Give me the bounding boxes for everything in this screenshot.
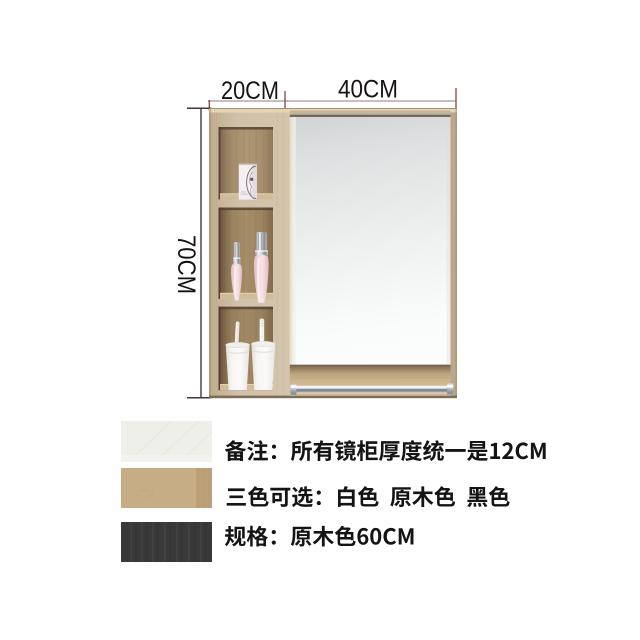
svg-text:70CM: 70CM xyxy=(172,235,200,294)
svg-text:20CM: 20CM xyxy=(221,77,279,105)
svg-text:40CM: 40CM xyxy=(338,76,398,104)
